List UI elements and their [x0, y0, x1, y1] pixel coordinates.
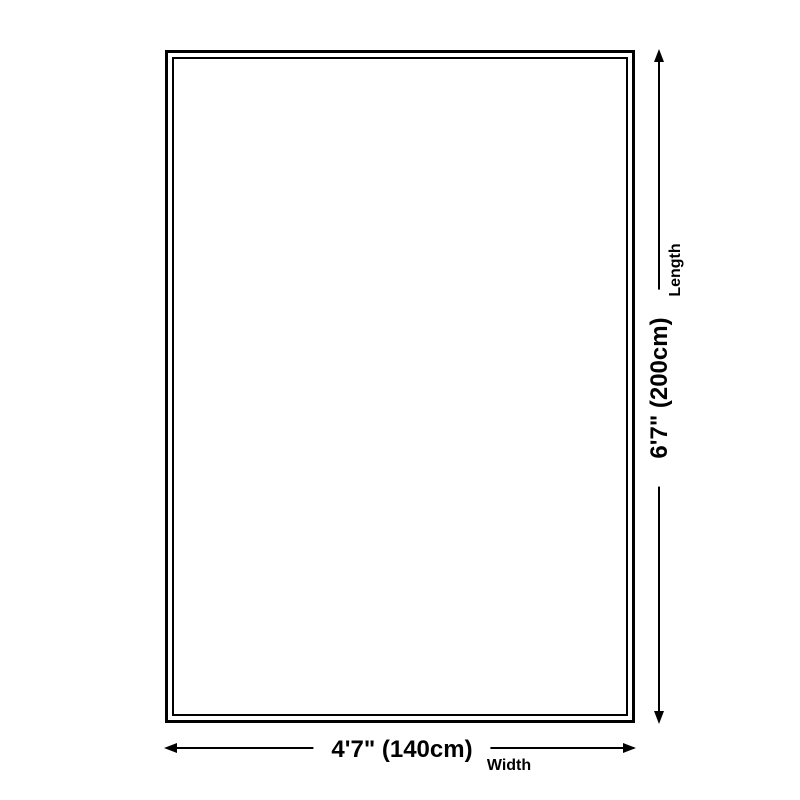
length-value: 6'7" (200cm): [645, 289, 675, 486]
width-label: Width: [487, 757, 531, 775]
dimension-diagram: 6'7" (200cm) Length 4'7" (140cm) Width: [0, 0, 800, 800]
length-label: Length: [667, 243, 685, 296]
arrow-left-icon: [164, 743, 177, 753]
width-value: 4'7" (140cm): [313, 735, 490, 765]
arrow-right-icon: [623, 743, 636, 753]
product-outline-inner: [172, 57, 628, 716]
arrow-up-icon: [654, 49, 664, 62]
product-outline: [165, 50, 635, 723]
arrow-down-icon: [654, 711, 664, 724]
